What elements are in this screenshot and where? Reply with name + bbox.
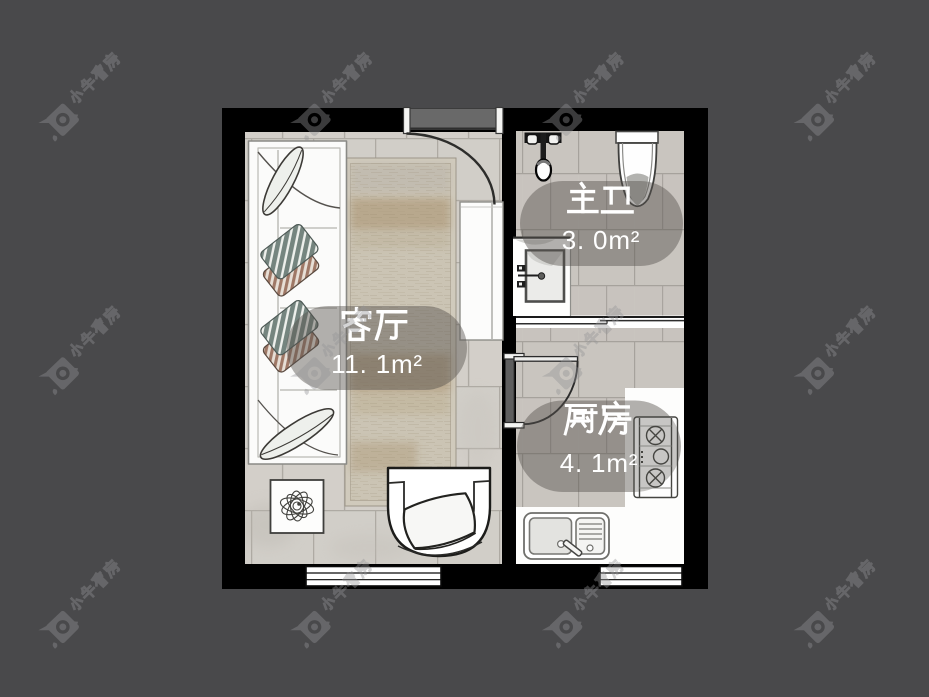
svg-text:3. 0m²: 3. 0m² (562, 225, 640, 255)
svg-text:4. 1m²: 4. 1m² (560, 448, 638, 478)
svg-text:11. 1m²: 11. 1m² (331, 349, 423, 379)
